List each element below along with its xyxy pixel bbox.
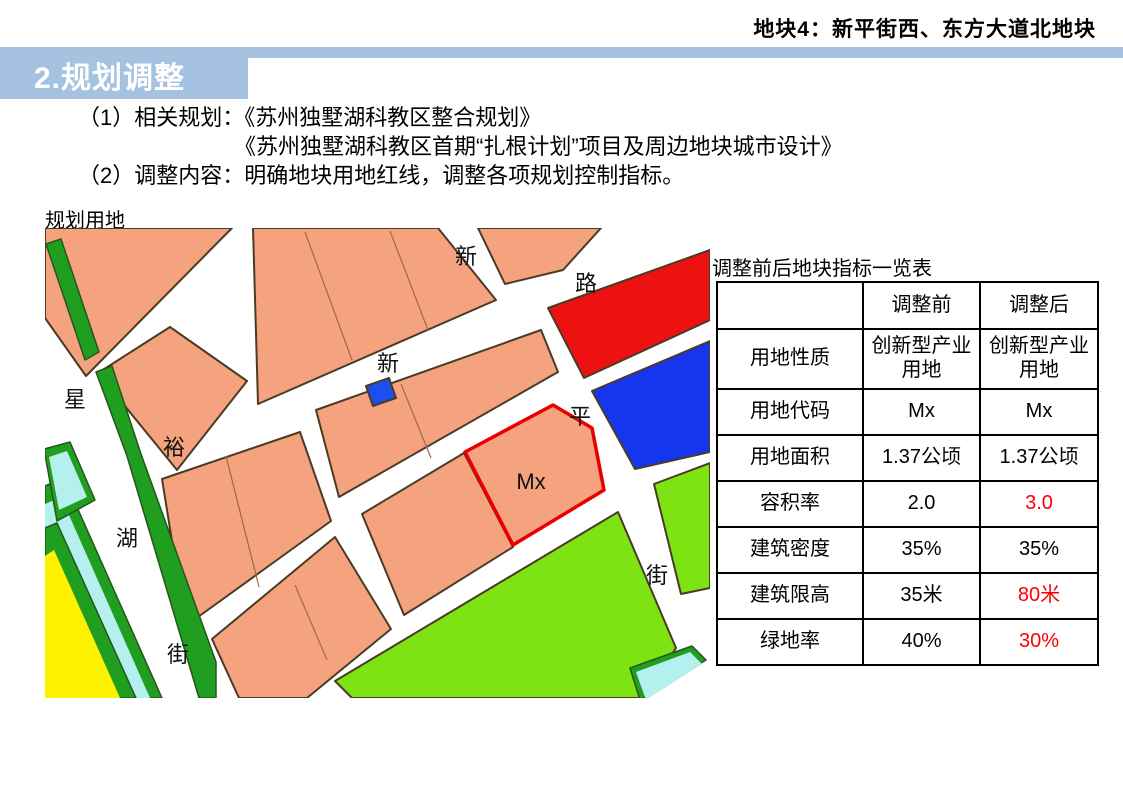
cell-after: 1.37公顷 bbox=[980, 435, 1098, 481]
row-label: 用地代码 bbox=[717, 389, 863, 435]
row-label: 容积率 bbox=[717, 481, 863, 527]
table-row: 用地代码 Mx Mx bbox=[717, 389, 1098, 435]
cell-before: 35% bbox=[863, 527, 980, 573]
road-label-xinping-3: 街 bbox=[646, 563, 668, 588]
road-label-yuxin-1: 裕 bbox=[163, 435, 185, 460]
table-title: 调整前后地块指标一览表 bbox=[712, 252, 932, 281]
table-row: 用地面积 1.37公顷 1.37公顷 bbox=[717, 435, 1098, 481]
body-line-1: （1）相关规划：《苏州独墅湖科教区整合规划》 bbox=[78, 103, 843, 132]
table-row: 容积率 2.0 3.0 bbox=[717, 481, 1098, 527]
road-label-yuxin-3: 路 bbox=[575, 271, 597, 296]
table-row: 建筑密度 35% 35% bbox=[717, 527, 1098, 573]
slide: 地块4：新平街西、东方大道北地块 2.规划调整 （1）相关规划：《苏州独墅湖科教… bbox=[0, 0, 1123, 794]
section-title: 2.规划调整 bbox=[34, 58, 185, 99]
cell-before: 2.0 bbox=[863, 481, 980, 527]
cell-before: Mx bbox=[863, 389, 980, 435]
cell-after: 35% bbox=[980, 527, 1098, 573]
cell-after: Mx bbox=[980, 389, 1098, 435]
page-title: 地块4：新平街西、东方大道北地块 bbox=[753, 13, 1096, 43]
cell-after-changed: 80米 bbox=[980, 573, 1098, 619]
cell-after-changed: 3.0 bbox=[980, 481, 1098, 527]
body-line-3: （2）调整内容：明确地块用地红线，调整各项规划控制指标。 bbox=[78, 161, 843, 190]
row-label: 用地性质 bbox=[717, 329, 863, 389]
road-label-yuxin-2: 新 bbox=[377, 351, 399, 376]
row-label: 绿地率 bbox=[717, 619, 863, 665]
road-label-xinghu-3: 街 bbox=[167, 642, 189, 667]
row-label: 用地面积 bbox=[717, 435, 863, 481]
road-label-xinping-1: 新 bbox=[455, 244, 477, 269]
land-use-map: Mx 星 湖 街 裕 新 路 新 平 街 bbox=[45, 228, 710, 698]
cell-before: 创新型产业用地 bbox=[863, 329, 980, 389]
subject-parcel-label: Mx bbox=[516, 469, 545, 494]
table-row: 用地性质 创新型产业用地 创新型产业用地 bbox=[717, 329, 1098, 389]
cell-after: 创新型产业用地 bbox=[980, 329, 1098, 389]
cell-before: 1.37公顷 bbox=[863, 435, 980, 481]
cell-before: 35米 bbox=[863, 573, 980, 619]
row-label: 建筑密度 bbox=[717, 527, 863, 573]
table-row: 绿地率 40% 30% bbox=[717, 619, 1098, 665]
header-cell-blank bbox=[717, 282, 863, 329]
road-label-xinghu-2: 湖 bbox=[116, 526, 138, 551]
header-cell-after: 调整后 bbox=[980, 282, 1098, 329]
row-label: 建筑限高 bbox=[717, 573, 863, 619]
body-line-2: 《苏州独墅湖科教区首期“扎根计划”项目及周边地块城市设计》 bbox=[78, 132, 843, 161]
header-cell-before: 调整前 bbox=[863, 282, 980, 329]
table-row: 建筑限高 35米 80米 bbox=[717, 573, 1098, 619]
body-text: （1）相关规划：《苏州独墅湖科教区整合规划》 《苏州独墅湖科教区首期“扎根计划”… bbox=[78, 103, 843, 190]
road-label-xinghu-1: 星 bbox=[64, 387, 86, 412]
table-header-row: 调整前 调整后 bbox=[717, 282, 1098, 329]
indicator-table: 调整前 调整后 用地性质 创新型产业用地 创新型产业用地 用地代码 Mx Mx … bbox=[716, 281, 1099, 666]
cell-after-changed: 30% bbox=[980, 619, 1098, 665]
cell-before: 40% bbox=[863, 619, 980, 665]
road-label-xinping-2: 平 bbox=[569, 404, 591, 429]
accent-bar bbox=[0, 47, 1123, 58]
